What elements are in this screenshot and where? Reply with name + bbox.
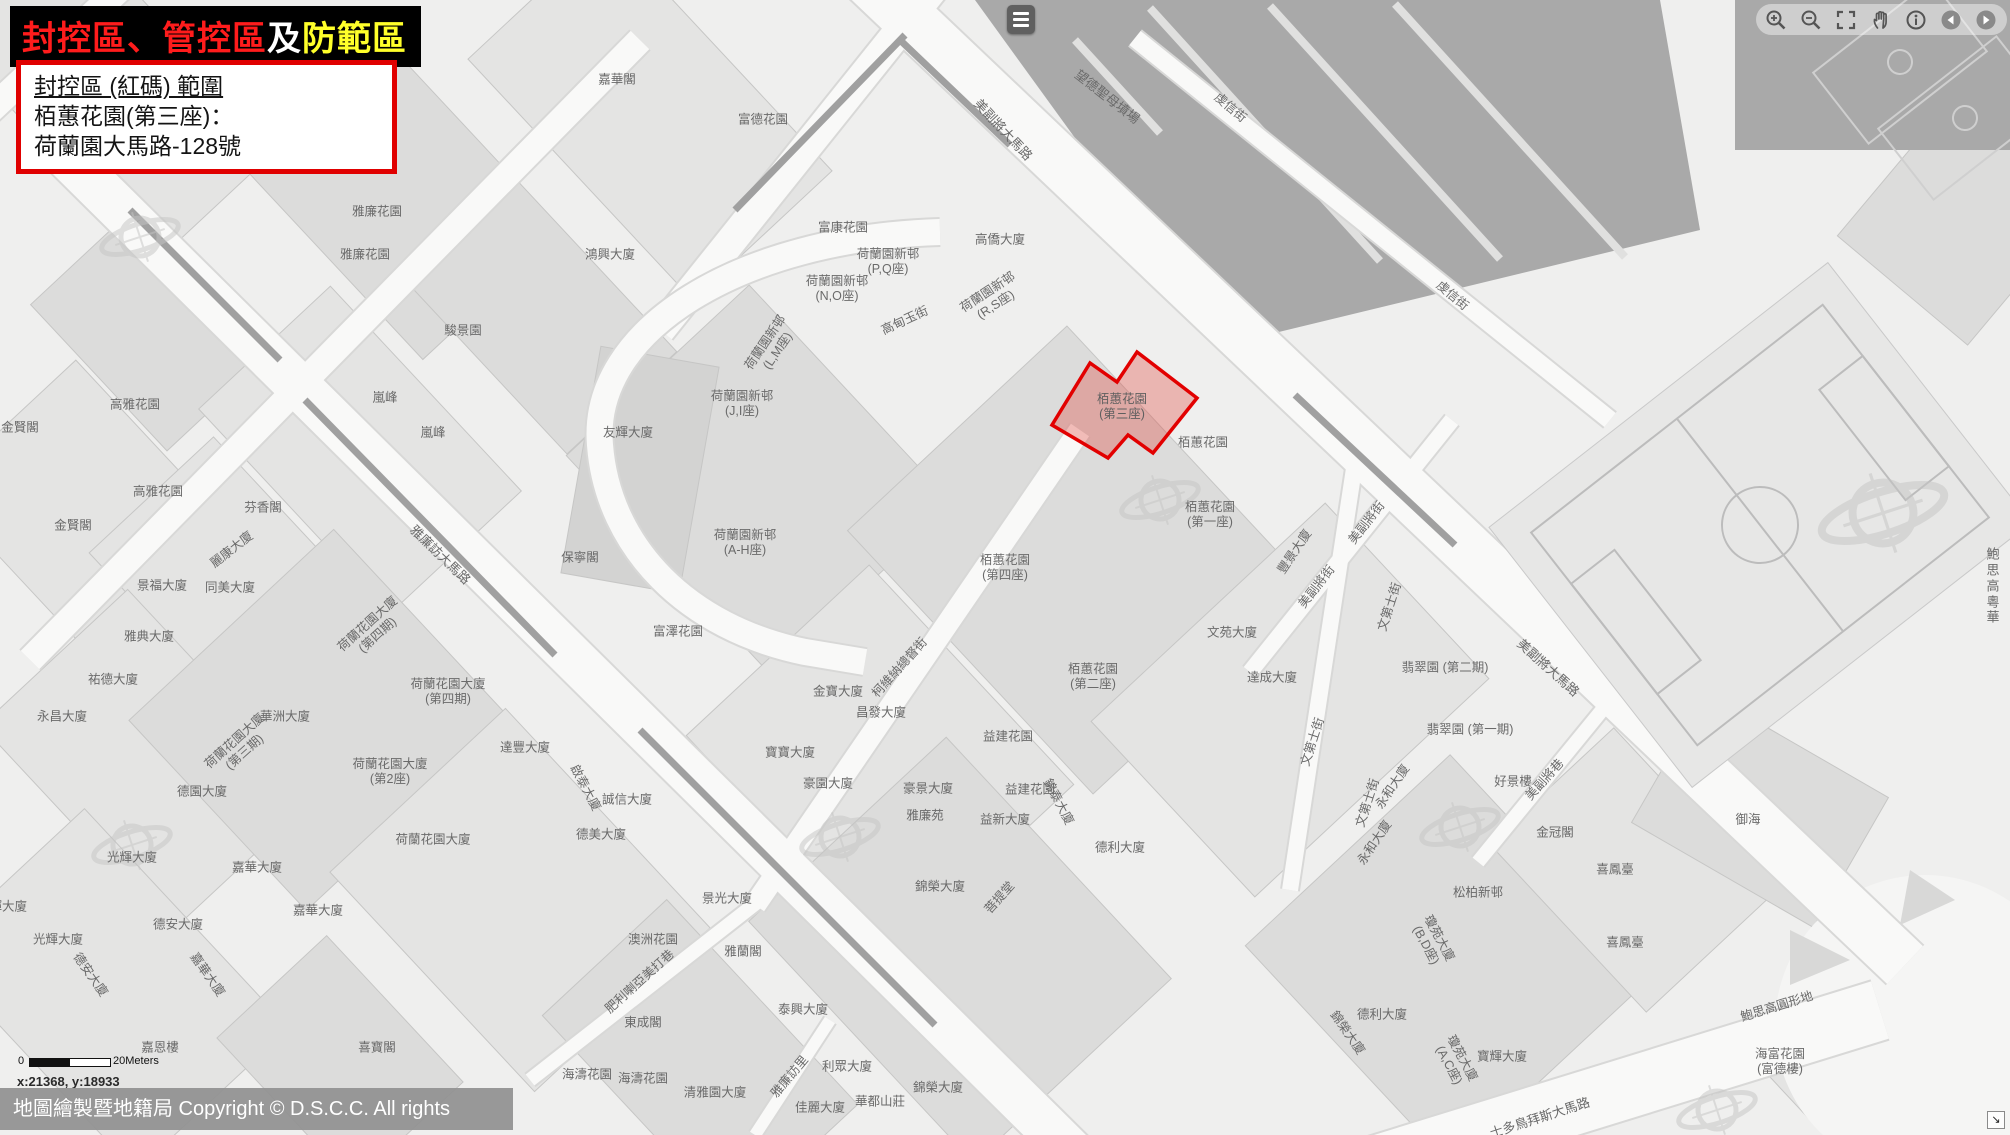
forward-icon (1974, 8, 1998, 32)
map-application: 嘉華閣富德花園鴻興大廈富康花園荷蘭園新邨 (P,Q座)荷蘭園新邨 (N,O座)荷… (0, 0, 2010, 1135)
map-toolbar (1756, 4, 2007, 35)
zoom-in-button[interactable] (1763, 6, 1790, 33)
full-extent-icon (1834, 8, 1858, 32)
pan-button[interactable] (1868, 6, 1895, 33)
copyright-bar: 地圖繪製暨地籍局 Copyright © D.S.C.C. All rights… (0, 1088, 513, 1130)
title-mid-text: 及 (267, 20, 302, 58)
layers-button[interactable] (1007, 5, 1035, 34)
legend-line-building: 栢蕙花園(第三座)： (34, 101, 392, 131)
full-extent-button[interactable] (1833, 6, 1860, 33)
popout-button[interactable]: ↘ (1987, 1111, 2005, 1129)
coordinates-readout: x:21368, y:18933 (17, 1074, 120, 1089)
zoom-in-icon (1764, 8, 1788, 32)
legend-line-zone: 封控區 (紅碼) 範圍 (34, 71, 392, 101)
scale-bar (29, 1058, 111, 1067)
pan-icon (1869, 8, 1893, 32)
layers-icon (1013, 12, 1029, 15)
zoom-out-icon (1799, 8, 1823, 32)
back-icon (1939, 8, 1963, 32)
page-title: 封控區、管控區及防範區 (10, 6, 421, 67)
title-red-text: 封控區、管控區 (22, 20, 267, 58)
legend-line-address: 荷蘭園大馬路-128號 (34, 131, 392, 161)
info-button[interactable] (1903, 6, 1930, 33)
zoom-out-button[interactable] (1798, 6, 1825, 33)
info-icon (1904, 8, 1928, 32)
scale-zero-label: 0 (18, 1055, 24, 1067)
back-button[interactable] (1938, 6, 1965, 33)
forward-button[interactable] (1973, 6, 2000, 33)
title-yellow-text: 防範區 (302, 20, 407, 58)
scale-distance-label: 20Meters (113, 1055, 159, 1067)
legend-box: 封控區 (紅碼) 範圍 栢蕙花園(第三座)： 荷蘭園大馬路-128號 (16, 60, 397, 174)
